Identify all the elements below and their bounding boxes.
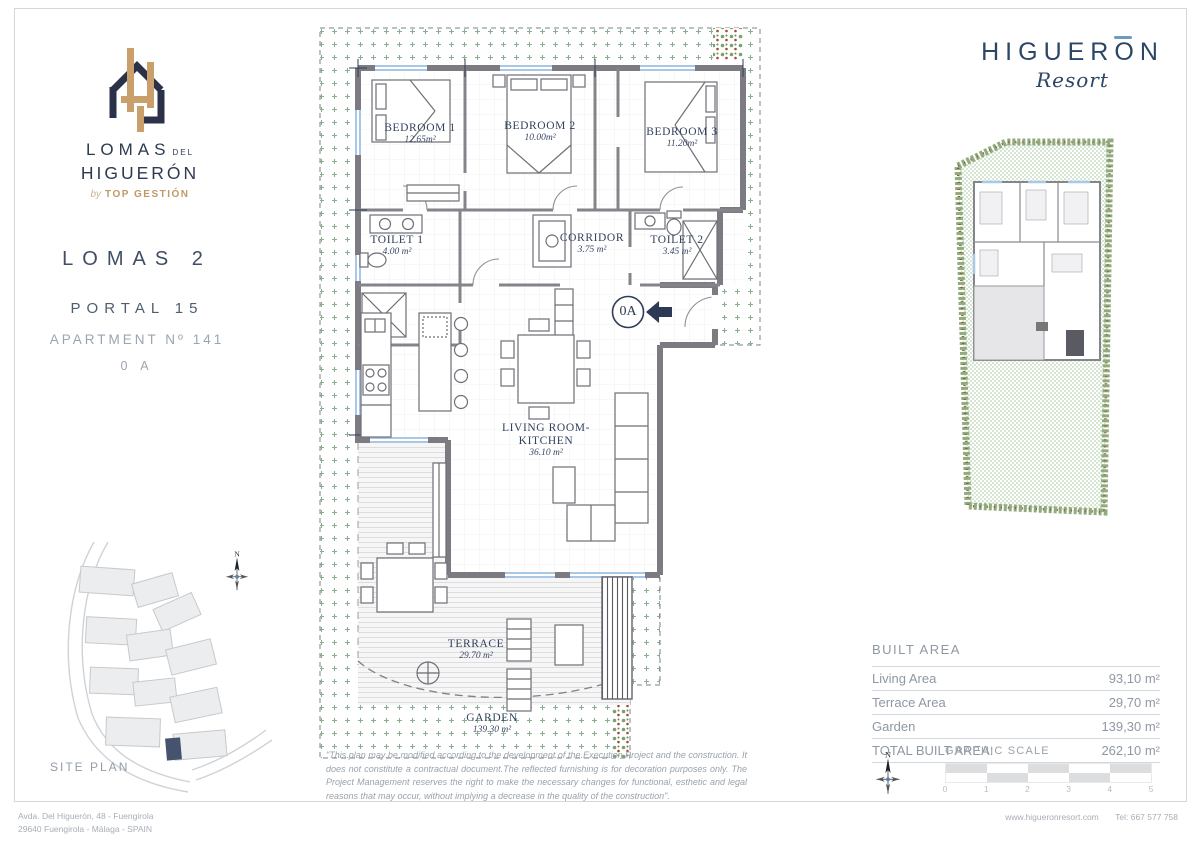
phone-number: Tel: 667 577 758 — [1115, 812, 1178, 822]
room-label-living: LIVING ROOM- KITCHEN 36.10 m² — [502, 422, 590, 459]
row-label: Terrace Area — [872, 695, 946, 710]
table-row: Garden 139,30 m² — [872, 714, 1160, 738]
row-label: Living Area — [872, 671, 936, 686]
footer-address: Avda. Del Higuerón, 48 - Fuengirola 2964… — [18, 810, 153, 836]
parasol-icon — [417, 662, 439, 684]
resort-o-macron: O — [1114, 38, 1139, 67]
row-value: 262,10 m² — [1101, 743, 1160, 758]
row-value: 93,10 m² — [1109, 671, 1160, 686]
compass-icon: N — [872, 748, 904, 796]
graphic-scale-bar — [945, 763, 1152, 783]
unit-info: LOMAS 2 PORTAL 15 APARTMENT Nº 141 0 A — [17, 248, 257, 373]
svg-text:N: N — [885, 750, 891, 759]
house-logo-icon — [107, 40, 173, 132]
graphic-scale-label: GRAPHIC SCALE — [945, 745, 1050, 757]
resort-word-start: HIGUER — [981, 38, 1114, 66]
hall-cupboard — [555, 289, 573, 337]
brand-by: by — [90, 189, 101, 200]
resort-logo: HIGUERON Resort — [975, 38, 1170, 92]
unit-type: 0 A — [17, 359, 257, 373]
compass-icon: N — [222, 548, 252, 592]
brand-logo: LOMASDEL HIGUERÓN byTOP GESTIÓN — [40, 40, 240, 200]
kitchen-counter — [361, 313, 391, 437]
room-label-bedroom1: BEDROOM 1 12.65m² — [384, 122, 456, 146]
block-title: LOMAS 2 — [17, 248, 257, 271]
mini-apartment — [974, 182, 1100, 360]
graphic-scale-ticks: 0 1 2 3 4 5 — [940, 784, 1156, 794]
resort-script: Resort — [975, 68, 1170, 92]
resort-word-end: N — [1140, 38, 1164, 66]
plot-overview-plan — [940, 134, 1118, 526]
room-label-bedroom2: BEDROOM 2 10.00m² — [504, 120, 576, 144]
brand-del: DEL — [172, 148, 194, 157]
table-row: Living Area 93,10 m² — [872, 666, 1160, 690]
entrance-label: 0A — [619, 304, 636, 320]
room-label-toilet1: TOILET 1 4.00 m² — [370, 234, 423, 258]
portal-title: PORTAL 15 — [17, 300, 257, 317]
brand-name-line1: LOMASDEL — [40, 140, 240, 160]
table-row: Terrace Area 29,70 m² — [872, 690, 1160, 714]
website-link[interactable]: www.higueronresort.com — [1005, 812, 1099, 822]
hedge-plants-top — [713, 28, 743, 60]
pergola — [602, 577, 632, 699]
brand-top-gestion: TOP GESTIÓN — [105, 189, 189, 200]
address-line2: 29640 Fuengirola - Málaga - SPAIN — [18, 823, 153, 836]
brand-name-line2: HIGUERÓN — [40, 163, 240, 184]
plan-sheet: LOMASDEL HIGUERÓN byTOP GESTIÓN LOMAS 2 … — [0, 0, 1200, 849]
brand-byline: byTOP GESTIÓN — [40, 189, 240, 200]
disclaimer-text: "This plan may be modified according to … — [326, 749, 747, 803]
site-plan-label: SITE PLAN — [50, 760, 129, 774]
row-label: Garden — [872, 719, 915, 734]
highlighted-building — [165, 737, 182, 760]
resort-title: HIGUERON — [975, 38, 1170, 67]
row-value: 29,70 m² — [1109, 695, 1160, 710]
room-label-toilet2: TOILET 2 3.45 m² — [650, 234, 703, 258]
room-label-garden: GARDEN 139.30 m² — [466, 712, 518, 736]
room-label-bedroom3: BEDROOM 3 11.20m² — [646, 126, 718, 150]
room-label-terrace: TERRACE 29.70 m² — [448, 638, 505, 662]
footer-contact: www.higueronresort.com Tel: 667 577 758 — [840, 812, 1178, 822]
address-line1: Avda. Del Higuerón, 48 - Fuengirola — [18, 810, 153, 823]
row-value: 139,30 m² — [1101, 719, 1160, 734]
built-area-header: BUILT AREA — [872, 640, 1160, 666]
room-label-corridor: CORRIDOR 3.75 m² — [560, 232, 624, 256]
svg-text:N: N — [234, 550, 240, 559]
brand-lomas: LOMAS — [86, 140, 171, 159]
apartment-number: APARTMENT Nº 141 — [17, 332, 257, 347]
